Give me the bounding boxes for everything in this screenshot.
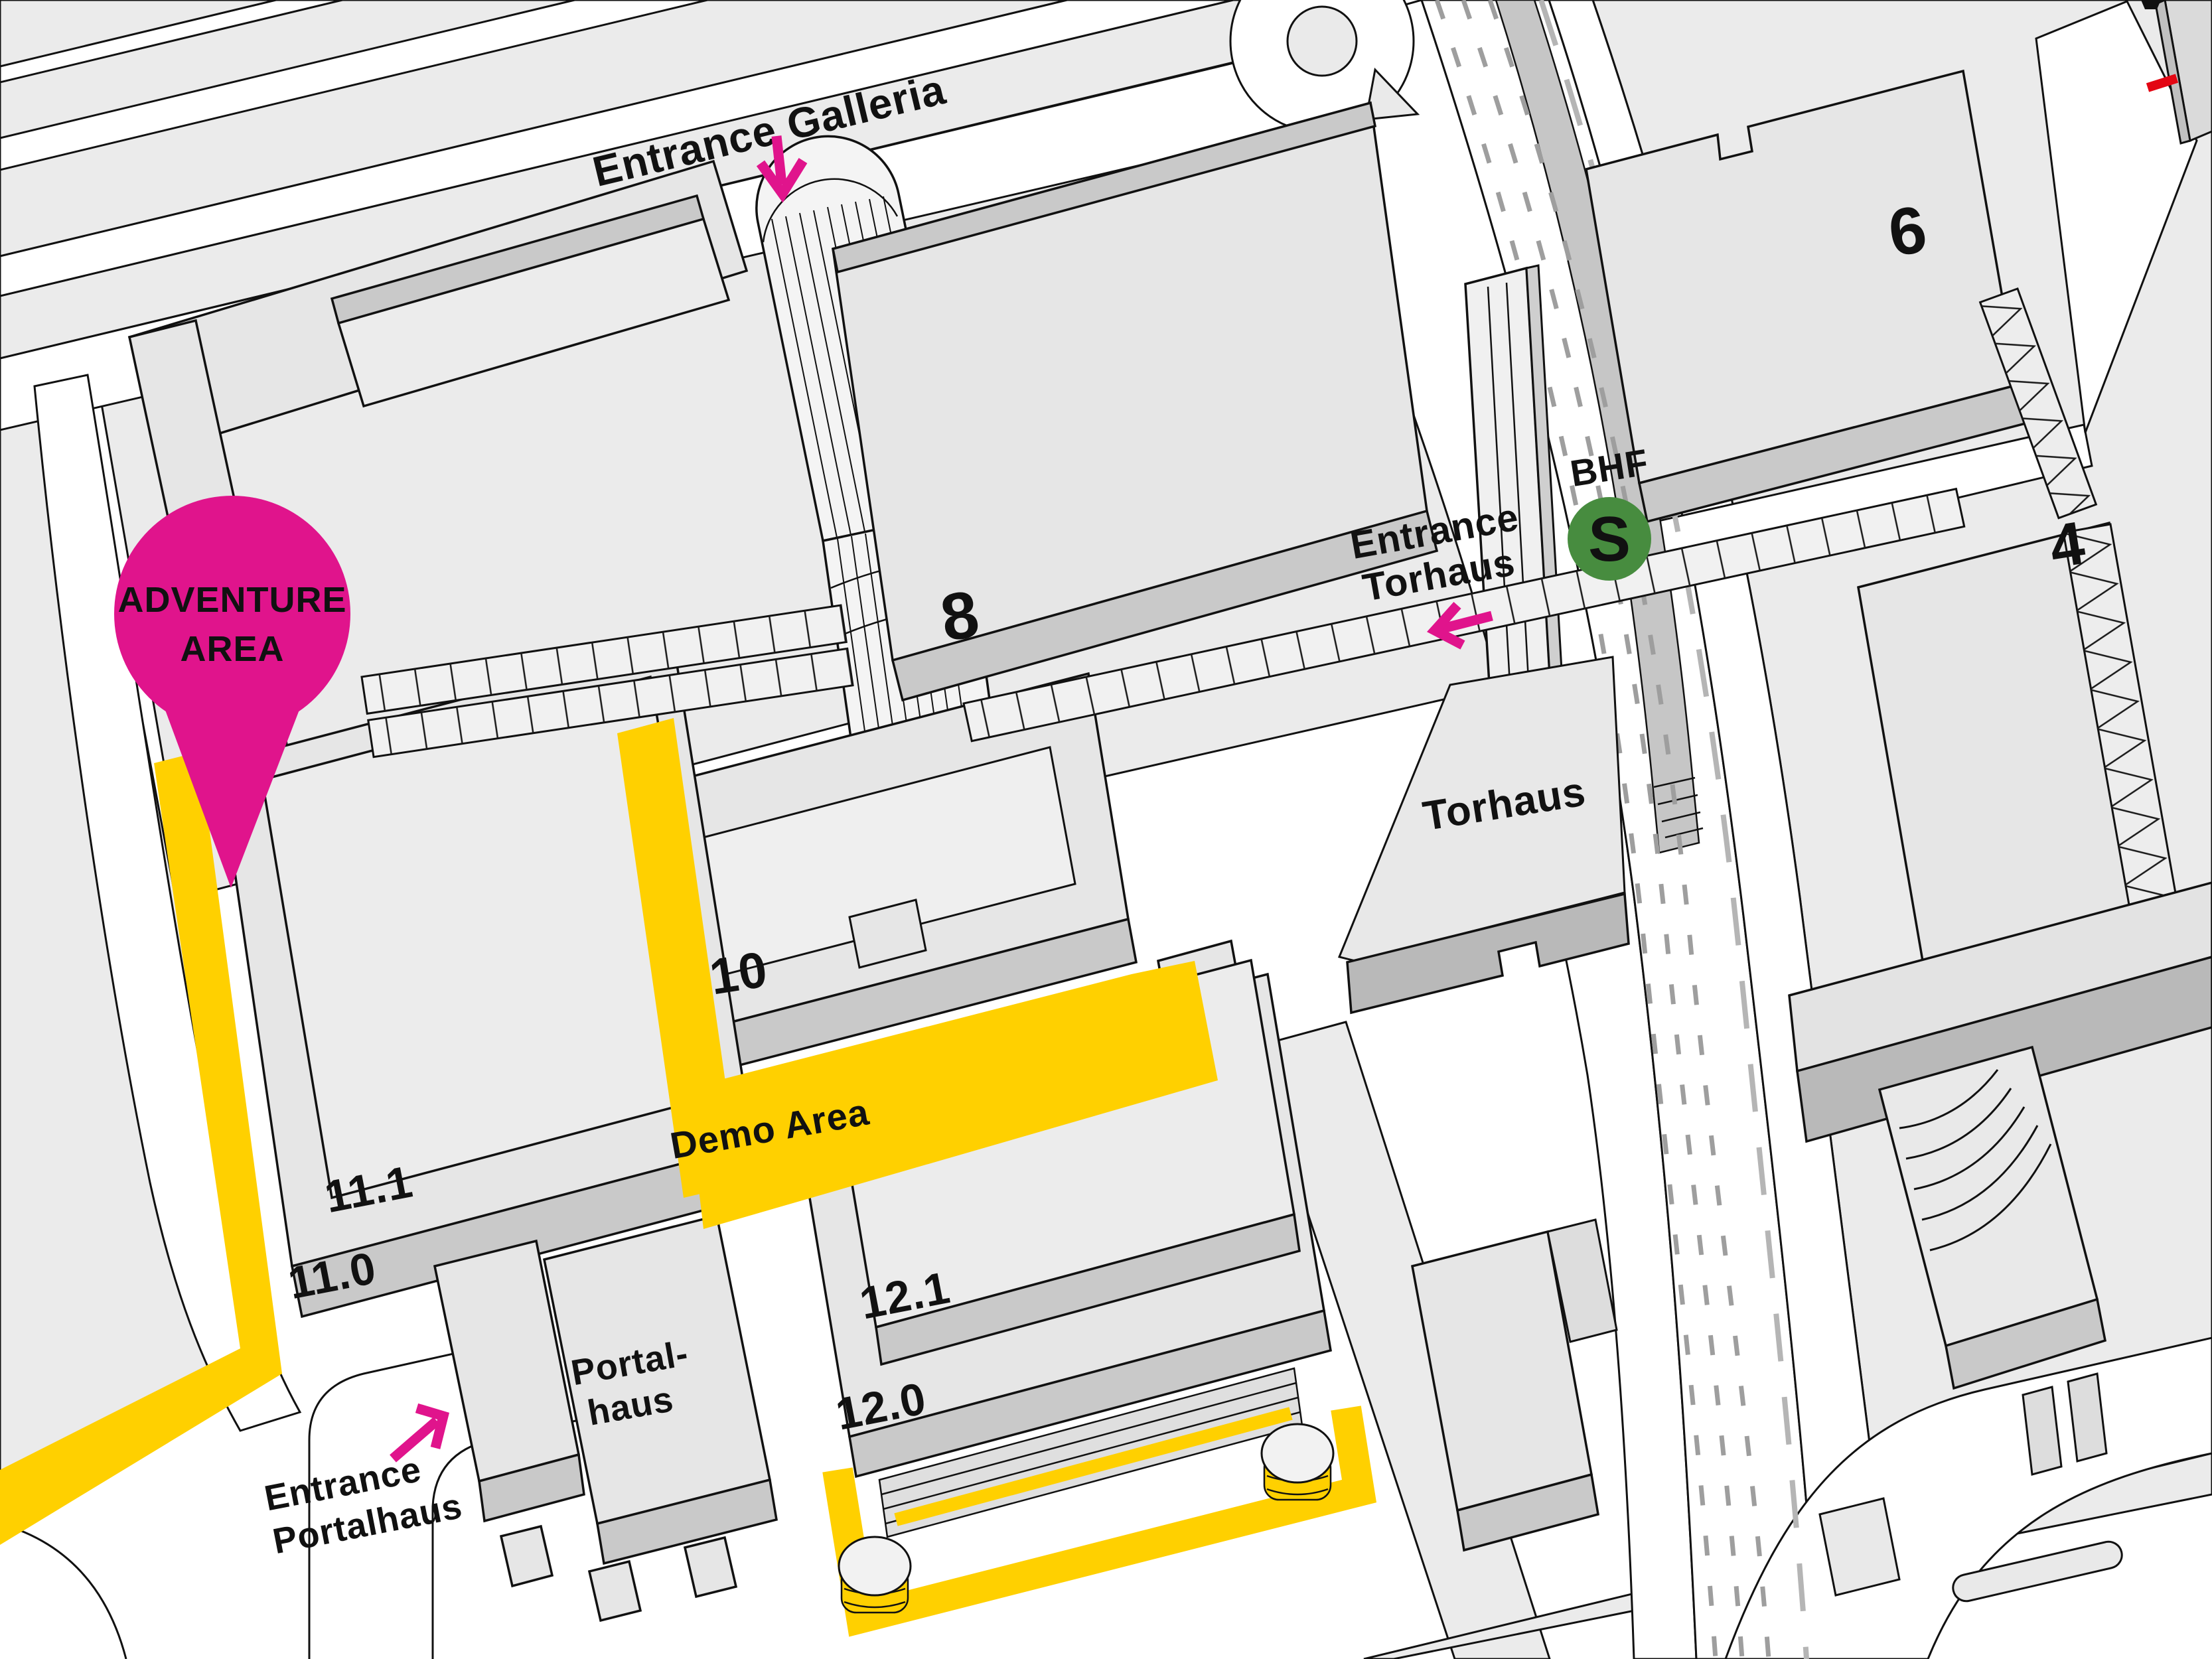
pin-label-line1: ADVENTURE <box>117 580 346 620</box>
sbahn-badge[interactable]: S <box>1568 497 1651 581</box>
label-hall-10: 10 <box>706 941 772 1005</box>
sbahn-icon: S <box>1588 504 1631 575</box>
map-canvas: Entrance Galleria 9.0 8 6 4 Entrance Tor… <box>0 0 2212 1659</box>
pin-label-line2: AREA <box>180 629 284 669</box>
ramp-tower-west <box>839 1537 911 1613</box>
site-map: Entrance Galleria 9.0 8 6 4 Entrance Tor… <box>0 0 2212 1659</box>
ramp-tower-east <box>1262 1424 1333 1500</box>
